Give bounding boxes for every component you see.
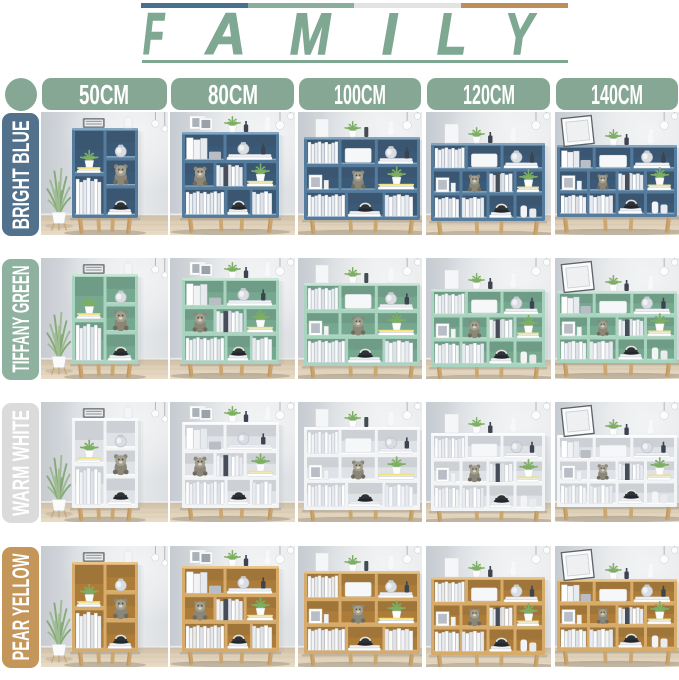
svg-text:PEAR YELLOW: PEAR YELLOW xyxy=(8,553,35,660)
svg-text:BRIGHT BLUE: BRIGHT BLUE xyxy=(8,121,35,230)
svg-text:WARM WHITE: WARM WHITE xyxy=(8,410,35,516)
svg-text:100CM: 100CM xyxy=(334,79,386,110)
svg-text:140CM: 140CM xyxy=(591,79,643,110)
svg-text:120CM: 120CM xyxy=(463,79,515,110)
svg-text:50CM: 50CM xyxy=(79,79,129,110)
svg-text:TIFFANY GREEN: TIFFANY GREEN xyxy=(8,266,35,373)
svg-text:80CM: 80CM xyxy=(208,79,258,110)
